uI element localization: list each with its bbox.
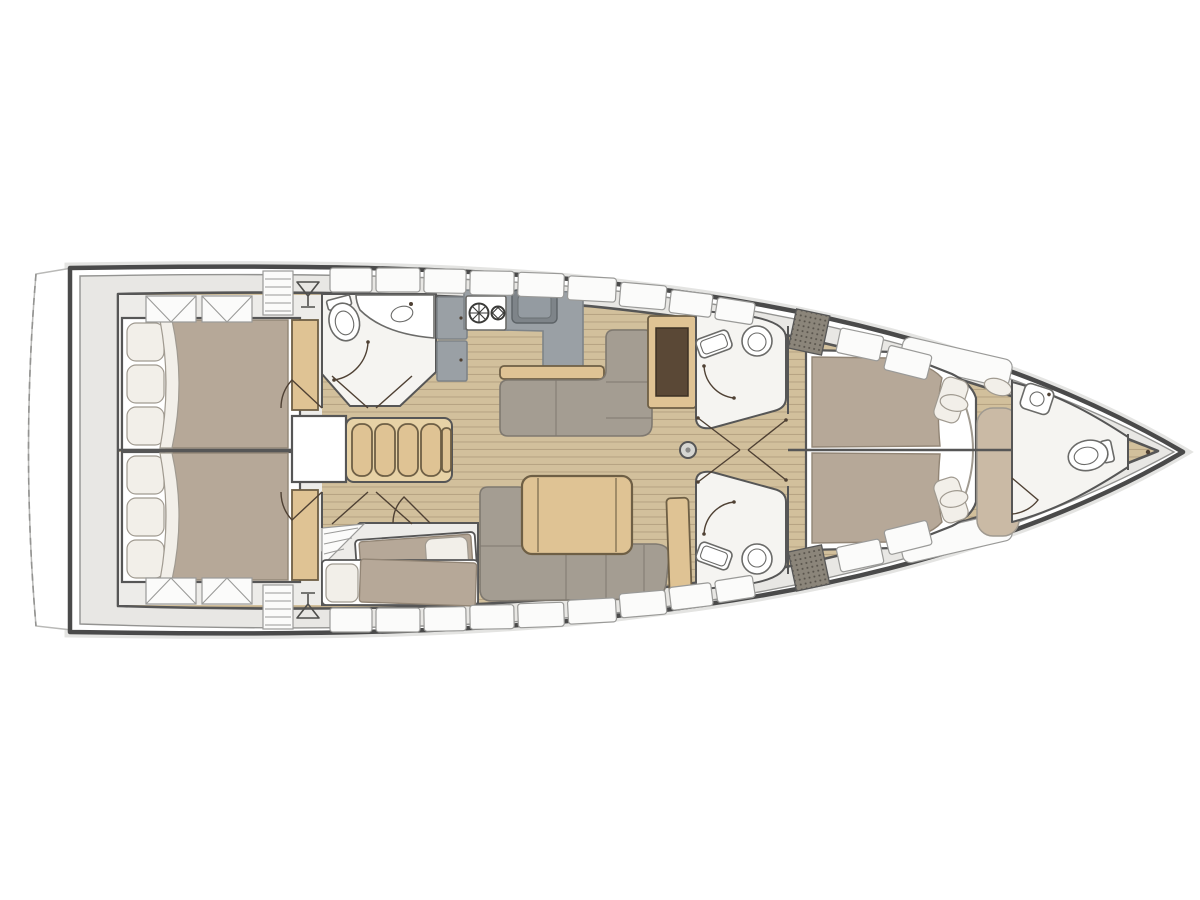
step-tread bbox=[442, 428, 451, 472]
mast-icon bbox=[680, 442, 696, 458]
deck-panel bbox=[518, 272, 565, 298]
double-berth-duvet bbox=[166, 453, 288, 580]
berth-side-cabinet bbox=[292, 490, 318, 580]
berth-side-cabinet bbox=[292, 320, 318, 410]
step-tread bbox=[398, 424, 418, 476]
headboard-cushion bbox=[127, 365, 164, 403]
headboard-cushion bbox=[127, 456, 164, 494]
deck-panel bbox=[376, 608, 420, 632]
single-berth-duvet bbox=[359, 559, 476, 606]
deck-panel bbox=[330, 608, 372, 632]
toilet-icon bbox=[742, 326, 772, 356]
deck-panel bbox=[470, 605, 514, 630]
door-pivot-dot bbox=[696, 416, 700, 420]
deck-panel bbox=[330, 268, 372, 292]
burner-small bbox=[492, 307, 505, 320]
door-pivot-dot bbox=[702, 364, 706, 368]
midship-head-starboard bbox=[695, 472, 786, 590]
deck-panel bbox=[567, 276, 616, 302]
toilet-icon bbox=[742, 544, 772, 574]
lower-berth bbox=[322, 559, 478, 606]
fridge-locker bbox=[437, 341, 467, 381]
yacht-floor-plan bbox=[0, 0, 1200, 900]
deck-panel bbox=[669, 583, 713, 611]
deck-grate-icon bbox=[788, 309, 830, 355]
door-pivot-dot bbox=[366, 340, 370, 344]
locker-handle-dot bbox=[459, 316, 462, 319]
door-pivot-dot bbox=[784, 478, 788, 482]
deck-panel bbox=[567, 598, 616, 624]
sink-basin bbox=[518, 295, 551, 318]
deck-panel bbox=[669, 290, 713, 318]
locker-handle-dot bbox=[459, 358, 462, 361]
headboard-cushion bbox=[127, 323, 164, 361]
headboard-cushion bbox=[127, 407, 164, 445]
sofa-end-cabinet bbox=[666, 498, 691, 595]
louvered-locker bbox=[263, 585, 293, 629]
swim-platform-deck bbox=[29, 268, 73, 630]
deck-hatch-icon bbox=[146, 578, 196, 604]
louvered-locker bbox=[263, 271, 293, 315]
faucet-dot bbox=[409, 302, 413, 306]
bunk-cabin bbox=[322, 523, 478, 606]
deck-panel bbox=[518, 602, 565, 628]
headboard-cushion bbox=[127, 540, 164, 578]
chart-table bbox=[648, 316, 696, 408]
deck-panel bbox=[470, 271, 514, 296]
door-pivot-dot bbox=[732, 500, 736, 504]
step-tread bbox=[421, 424, 441, 476]
midship-head-port bbox=[695, 310, 786, 428]
door-pivot-dot bbox=[702, 532, 706, 536]
settee-back-shelf bbox=[500, 366, 604, 379]
deck-panel bbox=[619, 282, 667, 310]
burner-spokes bbox=[471, 305, 488, 322]
aft-head bbox=[322, 294, 436, 406]
head-floor bbox=[696, 472, 786, 590]
door-pivot-dot bbox=[732, 396, 736, 400]
headboard-cushion bbox=[127, 498, 164, 536]
deck-panel bbox=[376, 268, 420, 292]
swim-platform bbox=[29, 268, 73, 630]
step-tread bbox=[375, 424, 395, 476]
deck-panel bbox=[424, 269, 466, 294]
deck-panel bbox=[424, 607, 466, 632]
door-pivot-dot bbox=[696, 480, 700, 484]
engine-box bbox=[292, 416, 346, 482]
stove-icon bbox=[466, 296, 506, 330]
deck-grate-icon bbox=[788, 545, 830, 591]
door-pivot-dot bbox=[784, 418, 788, 422]
deck-hatch-icon bbox=[202, 296, 252, 322]
floor-plan-canvas bbox=[0, 0, 1200, 900]
step-tread bbox=[352, 424, 372, 476]
double-berth-duvet bbox=[166, 320, 288, 448]
chart-table-top bbox=[656, 328, 688, 396]
berth-pillow bbox=[326, 564, 358, 602]
deck-hatch-icon bbox=[146, 296, 196, 322]
deck-hatch-icon bbox=[202, 578, 252, 604]
companionway bbox=[292, 416, 452, 482]
head-floor bbox=[696, 310, 786, 428]
deck-panel bbox=[619, 590, 667, 618]
bow-fitting-dot bbox=[1146, 450, 1150, 454]
mast-center-dot bbox=[685, 447, 690, 452]
